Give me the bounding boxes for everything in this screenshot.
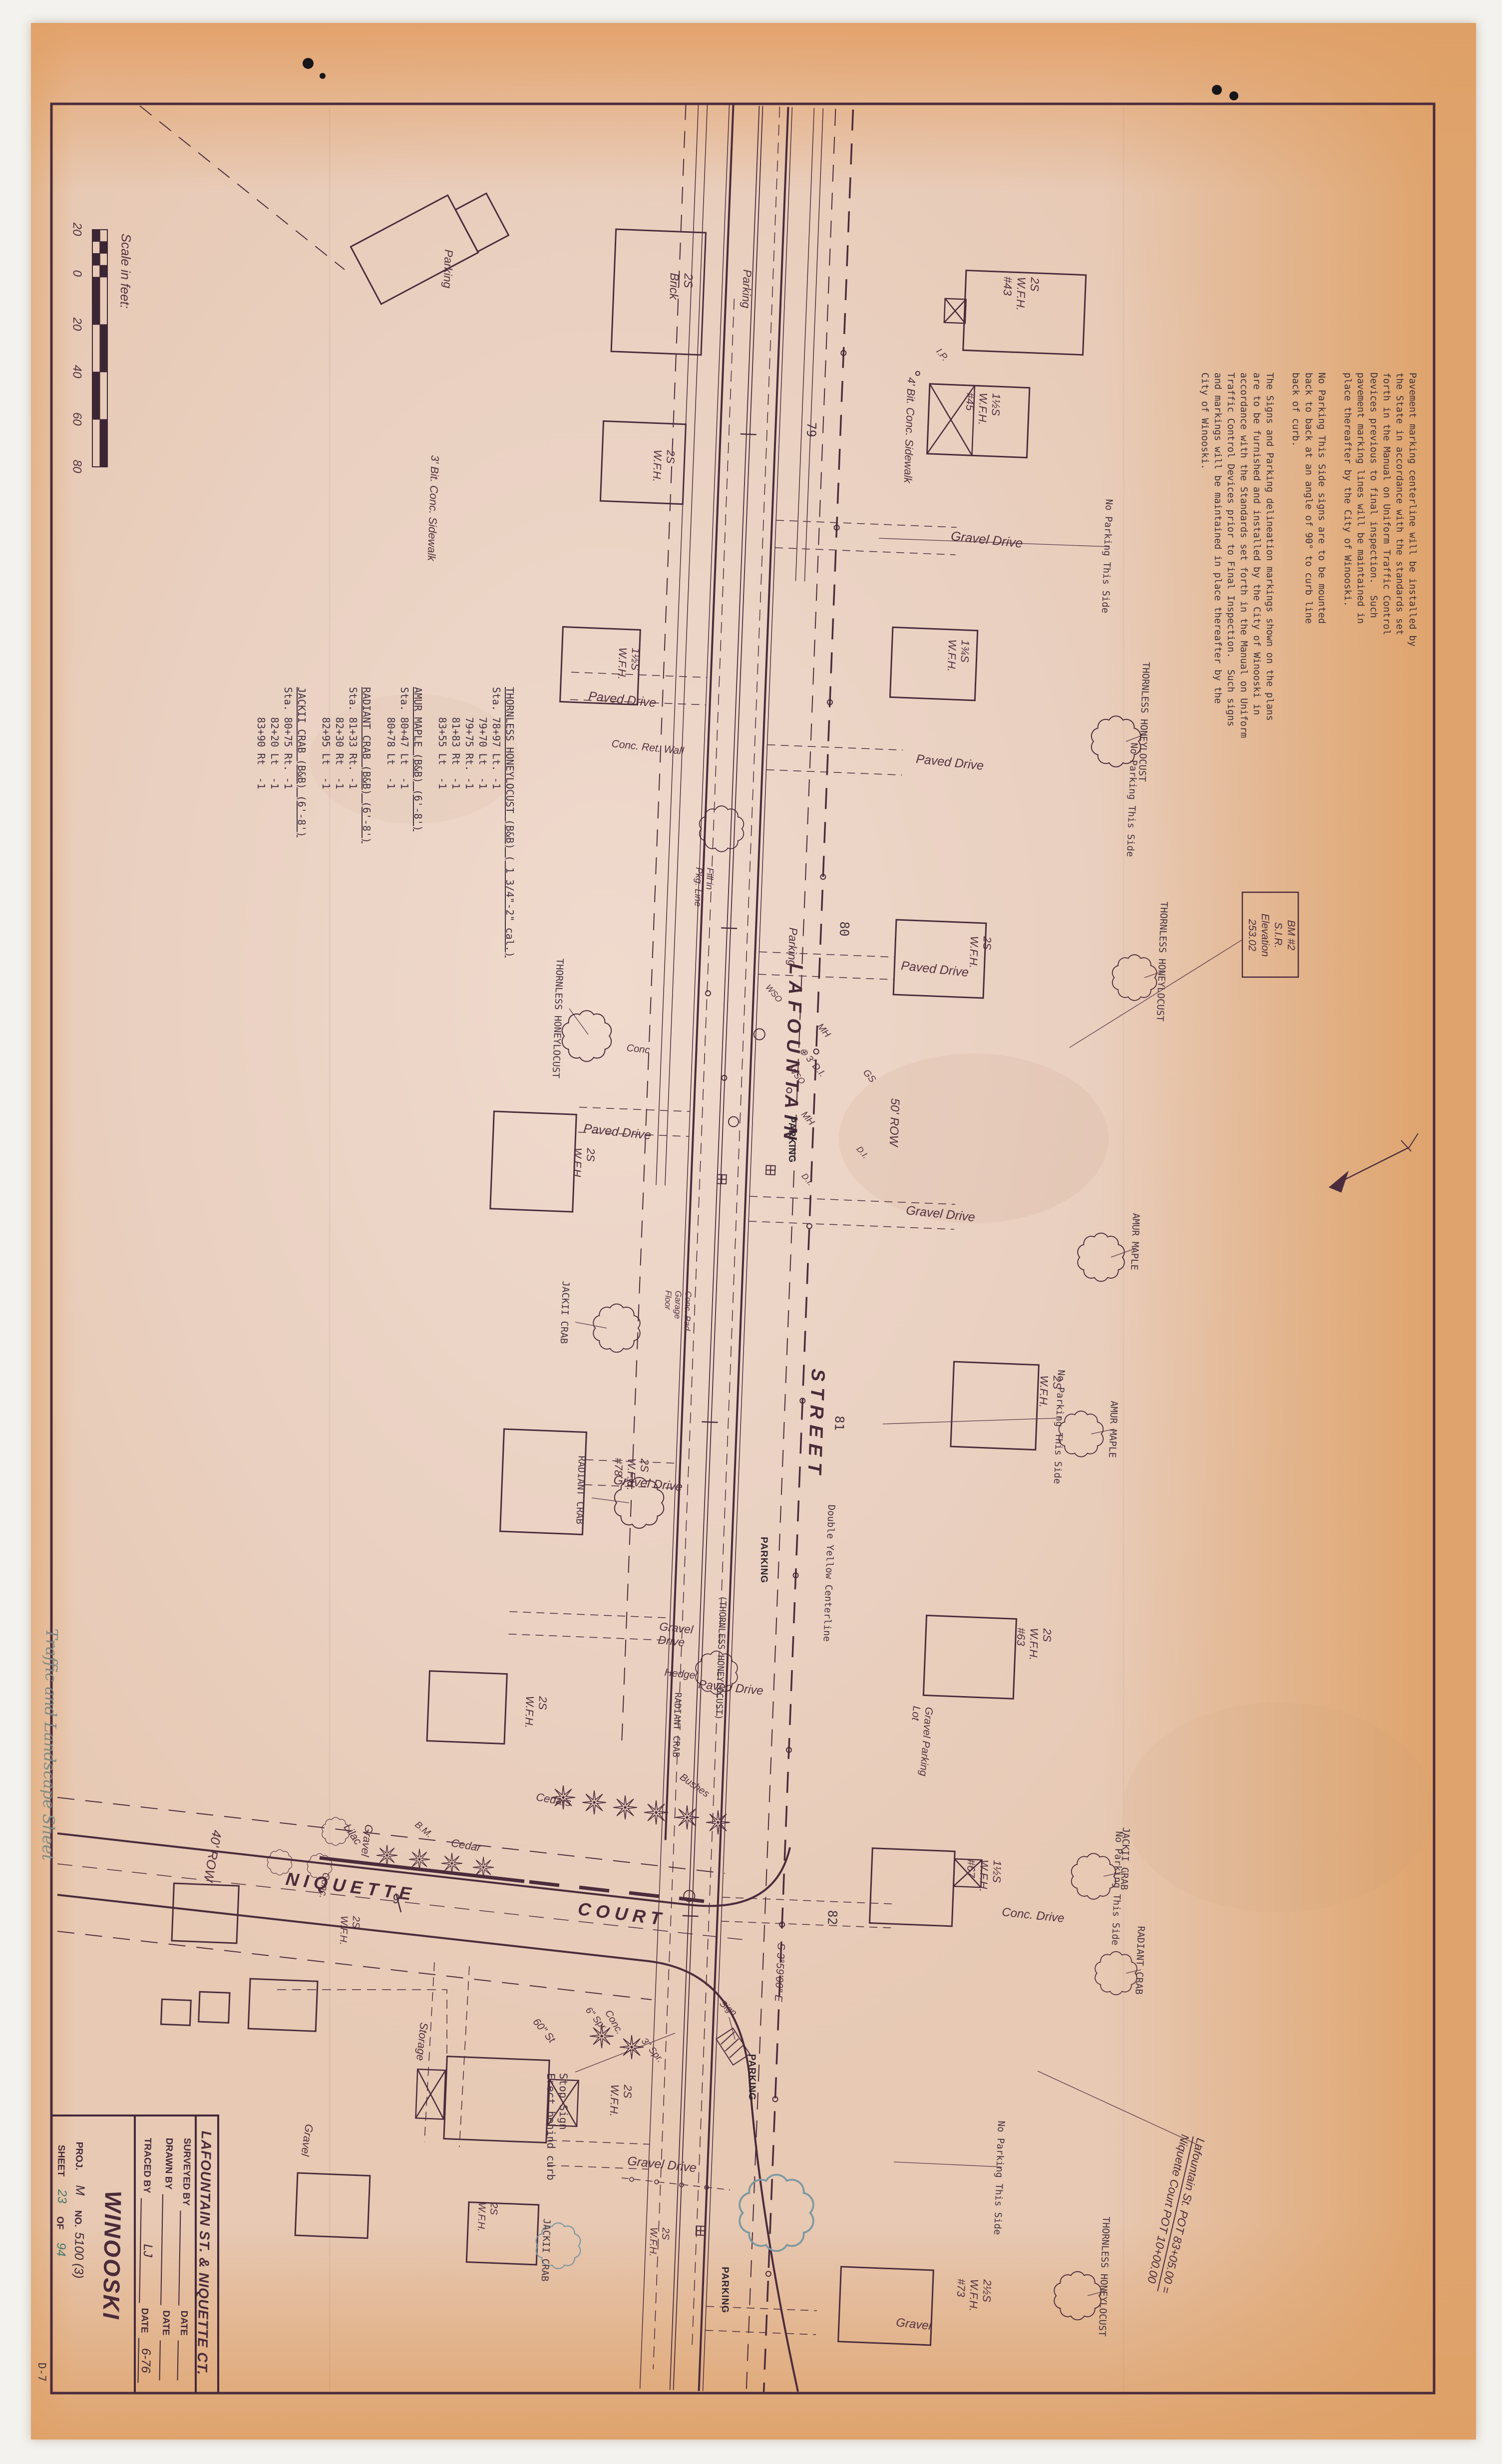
surveyed-date-field <box>177 2341 189 2381</box>
parking-hand-label: Parking <box>440 249 455 289</box>
row-label-lafountain: 50' ROW <box>886 1098 902 1147</box>
parking-hand-label: Parking <box>739 269 754 309</box>
traced-date-value: 6-76 <box>138 2338 153 2384</box>
parking-stamp: PARKING <box>758 1537 769 1583</box>
date-label: DATE <box>178 2310 189 2336</box>
plant-station-entry: Sta. 80+47 Lt -1 <box>397 687 411 997</box>
sidewalk-line <box>656 103 699 1185</box>
station-label-81: 81 <box>831 1415 847 1431</box>
plant-schedule: THORNLESS HONEYLOCUST (B&B) ( 1 3/4"-2" … <box>243 687 516 997</box>
scale-tick-label: 0 <box>69 270 84 277</box>
building-outline <box>351 179 509 304</box>
parking-stamp: PARKING <box>746 2054 757 2101</box>
general-note-paragraph: No Parking This Side signs are to be mou… <box>1289 372 1328 762</box>
water-shutoff-icon <box>706 991 711 996</box>
proj-number: 5100 (3) <box>71 2232 86 2279</box>
fill-in-note: Fill in Pkg. Line <box>691 867 715 907</box>
tree-species-label: AMUR MAPLE <box>1107 1401 1120 1458</box>
parking-stamp: PARKING <box>786 1116 797 1163</box>
plant-station-entry: Sta. 78+97 Lt. -1 <box>489 687 503 997</box>
benchmark-line: Elevation <box>1258 895 1271 976</box>
proj-label: PROJ. <box>73 2141 84 2170</box>
station-label-79: 79 <box>803 422 819 437</box>
general-note-paragraph: Pavement marking centerline will be inst… <box>1341 372 1419 762</box>
plant-station-entry: 79+70 Lt -1 <box>476 687 489 997</box>
tree-species-label: RADIANT CRAB <box>1133 1926 1146 1995</box>
tree-species-label: AMUR MAPLE <box>1128 1213 1141 1270</box>
plant-station-entry: 82+20 Lt -1 <box>268 687 281 997</box>
house-label: 2S W.F.H. <box>522 1696 549 1729</box>
manhole-icon <box>729 1116 739 1127</box>
iron-pin-icon <box>916 371 920 375</box>
stop-sign-note: Stop Sign Erect behind curb <box>544 2073 569 2180</box>
house-label: 2S W.F.H. <box>647 2227 671 2257</box>
scale-tick-label: 20 <box>69 223 84 236</box>
scale-tick-label: 40 <box>69 365 84 378</box>
plant-species-header: RADIANT CRAB (B&B) (6'-8') <box>360 687 373 997</box>
house-label: 2S W.F.H. #63 <box>1014 1627 1054 1661</box>
tree-species-label: JACKII CRAB <box>539 2218 552 2282</box>
station-label-82: 82 <box>824 1910 840 1925</box>
house-label: 1½S W.F.H. #45 <box>963 392 1003 425</box>
scale-bar <box>92 230 107 467</box>
plant-station-entry: 83+90 Rt -1 <box>254 687 268 997</box>
house-label: 1¾S W.F.H. <box>945 639 972 673</box>
date-label: DATE <box>160 2310 171 2336</box>
drawn-date-field <box>159 2340 171 2380</box>
parking-hand-label: Parking <box>785 927 800 967</box>
drawing-code: D-7 <box>35 2363 48 2382</box>
proj-value: M <box>72 2175 87 2205</box>
plant-station-entry: Sta. 80+75 Rt. -1 <box>281 687 295 997</box>
curb-line <box>699 107 788 2391</box>
utility-line <box>763 109 853 2394</box>
plant-station-entry: 82+30 Rt -1 <box>333 687 346 997</box>
drawn-by-field <box>160 2194 174 2305</box>
tree-species-label: JACKII CRAB <box>1118 1827 1131 1890</box>
conc-label: Conc <box>626 1043 651 1056</box>
benchmark-note: BM #2 S.I.R. Elevation 253.02 <box>1245 895 1297 976</box>
benchmark-line: S.I.R. <box>1271 895 1284 976</box>
scale-tick-label: 20 <box>69 318 84 331</box>
margin-note: Traffic and Landscape Sheet <box>38 1628 61 1860</box>
road-lafountain <box>147 85 1092 2403</box>
house-label: 2S Brick <box>666 273 695 300</box>
leader-line <box>569 538 1242 2296</box>
scanned-plan-sheet: Pavement marking centerline will be inst… <box>0 0 1502 2464</box>
manhole-icon <box>753 1029 765 1040</box>
garage-floor-note: Conc. Pad Garage Floor <box>662 1290 693 1331</box>
house-label: 2S W.F.H. <box>607 2084 634 2117</box>
driveway-lines <box>482 511 982 2338</box>
drawn-by-label: DRAWN BY <box>162 2138 174 2190</box>
punch-hole <box>303 58 1238 100</box>
house-label: 2S W.F.H. <box>650 449 677 483</box>
title-block-proj-row: PROJ. M NO. 5100 (3) <box>71 2141 88 2278</box>
road-centerline <box>674 106 763 2390</box>
evergreen-tree-icon <box>376 1785 730 2059</box>
plant-species-header: JACKII CRAB (B&B) (6'-8') <box>295 687 308 997</box>
no-label: NO. <box>72 2210 83 2227</box>
surveyed-by-field <box>178 2210 191 2305</box>
tree-species-label: JACKII CRAB <box>558 1281 571 1344</box>
general-notes: Pavement marking centerline will be inst… <box>1185 372 1419 762</box>
house-label: 2S W.F.H. <box>570 1147 597 1181</box>
house-label: 2½S W.F.H. #73 <box>954 2278 994 2312</box>
plant-species-header: AMUR MAPLE (B&B) (6'-8') <box>411 687 424 997</box>
sheet-number: 23 <box>54 2181 69 2211</box>
house-label: 2S W.F.H. <box>475 2202 499 2232</box>
title-block-city: WINOOSKI <box>97 2190 127 2321</box>
of-label: OF <box>54 2216 65 2230</box>
plant-station-entry: 83+55 Lt -1 <box>435 687 449 997</box>
benchmark-line: 253.02 <box>1245 895 1258 976</box>
plant-station-entry: 82+95 Lt -1 <box>319 687 333 997</box>
plant-species-header: THORNLESS HONEYLOCUST (B&B) ( 1 3/4"-2" … <box>503 687 516 997</box>
scale-caption: Scale in feet: <box>117 233 134 309</box>
house-outline <box>826 268 1086 2348</box>
house-label: 2S W.F.H. #43 <box>1000 276 1042 312</box>
station-label-80: 80 <box>836 921 852 937</box>
surveyed-by-label: SURVEYED BY <box>180 2138 192 2206</box>
fence-line <box>622 2177 730 2190</box>
plant-station-entry: Sta. 81+33 Rt. -1 <box>346 687 360 997</box>
sheet-label: SHEET <box>55 2144 66 2176</box>
tree-species-label: RADIANT CRAB <box>574 1455 587 1524</box>
sidewalk-line <box>795 108 814 581</box>
sidewalk-line <box>665 104 708 1185</box>
traced-by-value: LJ <box>139 2198 156 2303</box>
scale-tick-label: 60 <box>69 412 84 426</box>
scale-tick-label: 80 <box>69 460 84 473</box>
date-label: DATE <box>139 2308 150 2333</box>
sign-symbol <box>716 2028 750 2065</box>
property-line <box>140 106 345 270</box>
house-label: 1½S W.F.H. #67 <box>964 1859 1004 1892</box>
plant-station-entry: 80+78 Lt -1 <box>384 687 397 997</box>
sheet-total: 94 <box>53 2234 68 2264</box>
street-name-street: STREET <box>802 1368 829 1480</box>
storage-outline <box>248 1979 318 2031</box>
tree-species-label: RADIANT CRAB <box>670 1692 683 1758</box>
north-arrow-icon <box>1329 1133 1418 1192</box>
traced-by-label: TRACED BY <box>141 2137 153 2193</box>
benchmark-line: BM #2 <box>1284 895 1297 976</box>
parking-stamp: PARKING <box>719 2267 730 2313</box>
title-block-sheet-row: SHEET 23 OF 94 <box>53 2144 70 2264</box>
plant-station-entry: 79+75 Rt. -1 <box>462 687 476 997</box>
general-note-paragraph: The Signs and Parking delineation markin… <box>1198 372 1276 762</box>
house-label: 1½S W.F.H. <box>615 647 642 681</box>
house-label: 2S W.F.H. <box>967 936 994 969</box>
plant-station-entry: 81+83 Rt -1 <box>449 687 462 997</box>
house-label: 2S W.F.H. <box>337 1915 362 1946</box>
drive-label: Gravel Drive <box>657 1620 694 1650</box>
